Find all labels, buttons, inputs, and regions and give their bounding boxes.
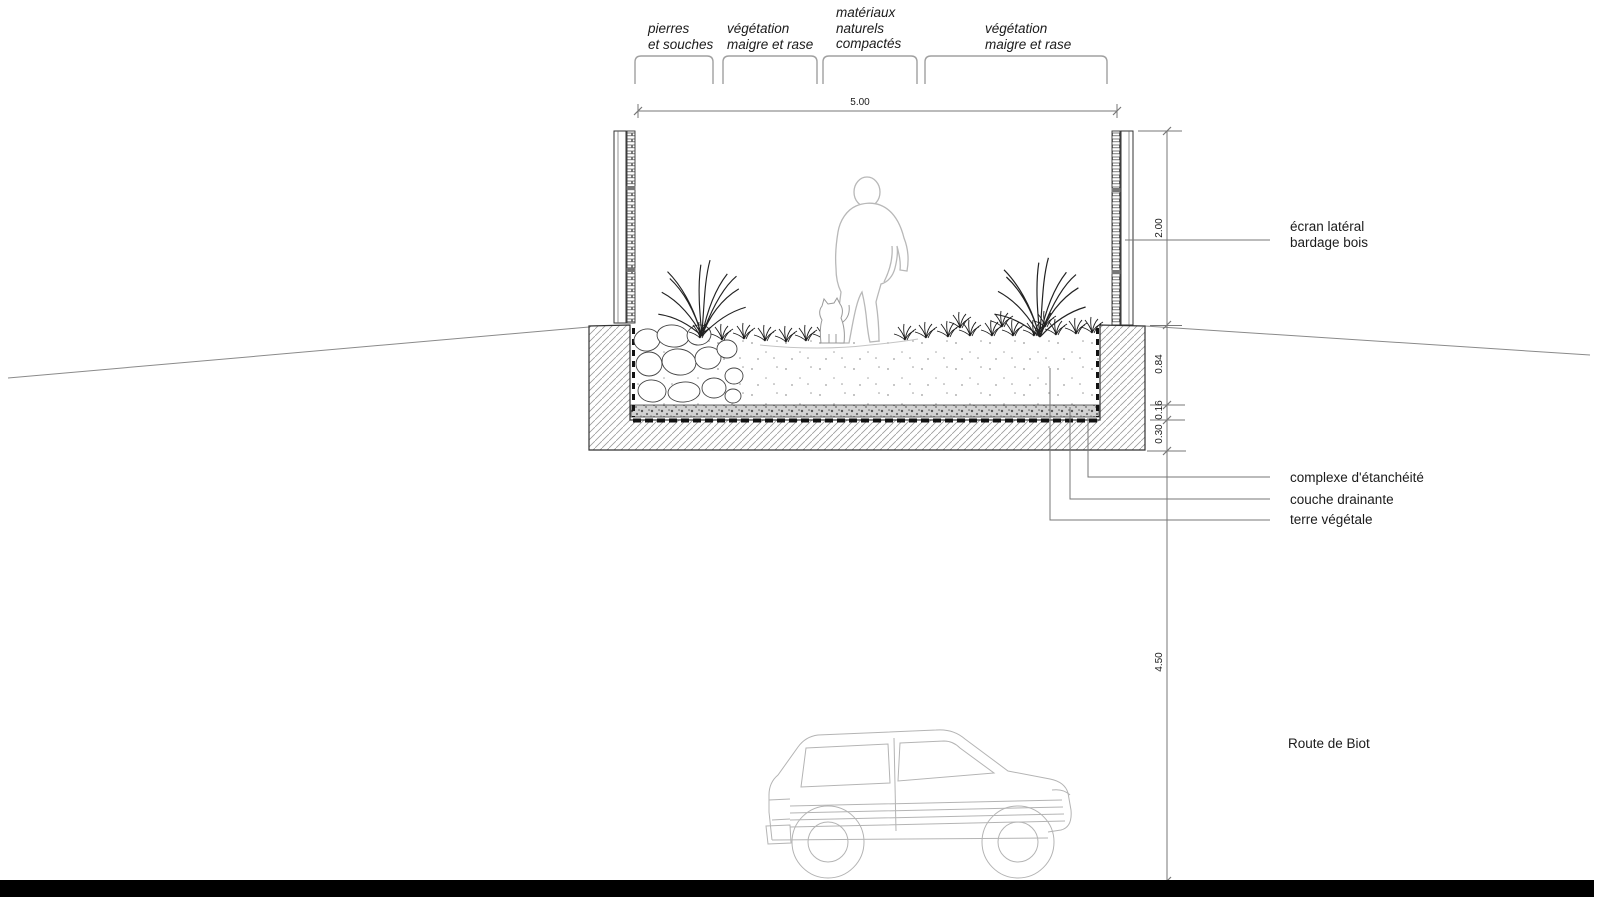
zone-label-vegetation-right: végétation maigre et rase [985, 21, 1071, 52]
zone-label-line: maigre et rase [727, 37, 813, 53]
left-screen-wall [614, 131, 636, 323]
label-waterproofing: complexe d'étanchéité [1290, 470, 1424, 486]
car-figure [766, 730, 1071, 878]
zone-label-line: pierres [648, 21, 713, 37]
zone-label-line: végétation [985, 21, 1071, 37]
road-surface-bar [0, 880, 1594, 897]
width-dimension-line [634, 104, 1121, 118]
zone-label-line: végétation [727, 21, 813, 37]
zone-label-compacted-materials: matériaux naturels compactés [836, 5, 901, 52]
drainage-layer [631, 405, 1099, 417]
dimension-soil-depth: 0.84 [1155, 354, 1165, 373]
zone-label-vegetation-left: végétation maigre et rase [727, 21, 813, 52]
section-drawing-sheet: pierres et souches végétation maigre et … [0, 0, 1600, 903]
label-lateral-screen: écran latéral bardage bois [1290, 219, 1368, 250]
label-road-name: Route de Biot [1288, 736, 1370, 752]
dimension-slab-thickness: 0.30 [1155, 424, 1165, 443]
dimension-drainage-thickness: 0.16 [1155, 400, 1165, 419]
zone-label-line: naturels [836, 21, 901, 37]
dimension-screen-height: 2.00 [1155, 218, 1165, 237]
label-line: bardage bois [1290, 235, 1368, 251]
zone-label-line: maigre et rase [985, 37, 1071, 53]
label-drainage: couche drainante [1290, 492, 1394, 508]
zone-label-line: matériaux [836, 5, 901, 21]
right-screen-wall [1112, 131, 1134, 325]
zone-brackets [635, 56, 1107, 84]
zone-label-line: compactés [836, 36, 901, 52]
zone-label-stones-stumps: pierres et souches [648, 21, 713, 52]
dimension-deck-width: 5.00 [850, 98, 869, 108]
label-line: écran latéral [1290, 219, 1368, 235]
section-drawing-canvas [0, 0, 1600, 903]
height-dimension-chain [1138, 127, 1186, 885]
zone-label-line: et souches [648, 37, 713, 53]
label-topsoil: terre végétale [1290, 512, 1373, 528]
dimension-clearance: 4.50 [1155, 652, 1165, 671]
